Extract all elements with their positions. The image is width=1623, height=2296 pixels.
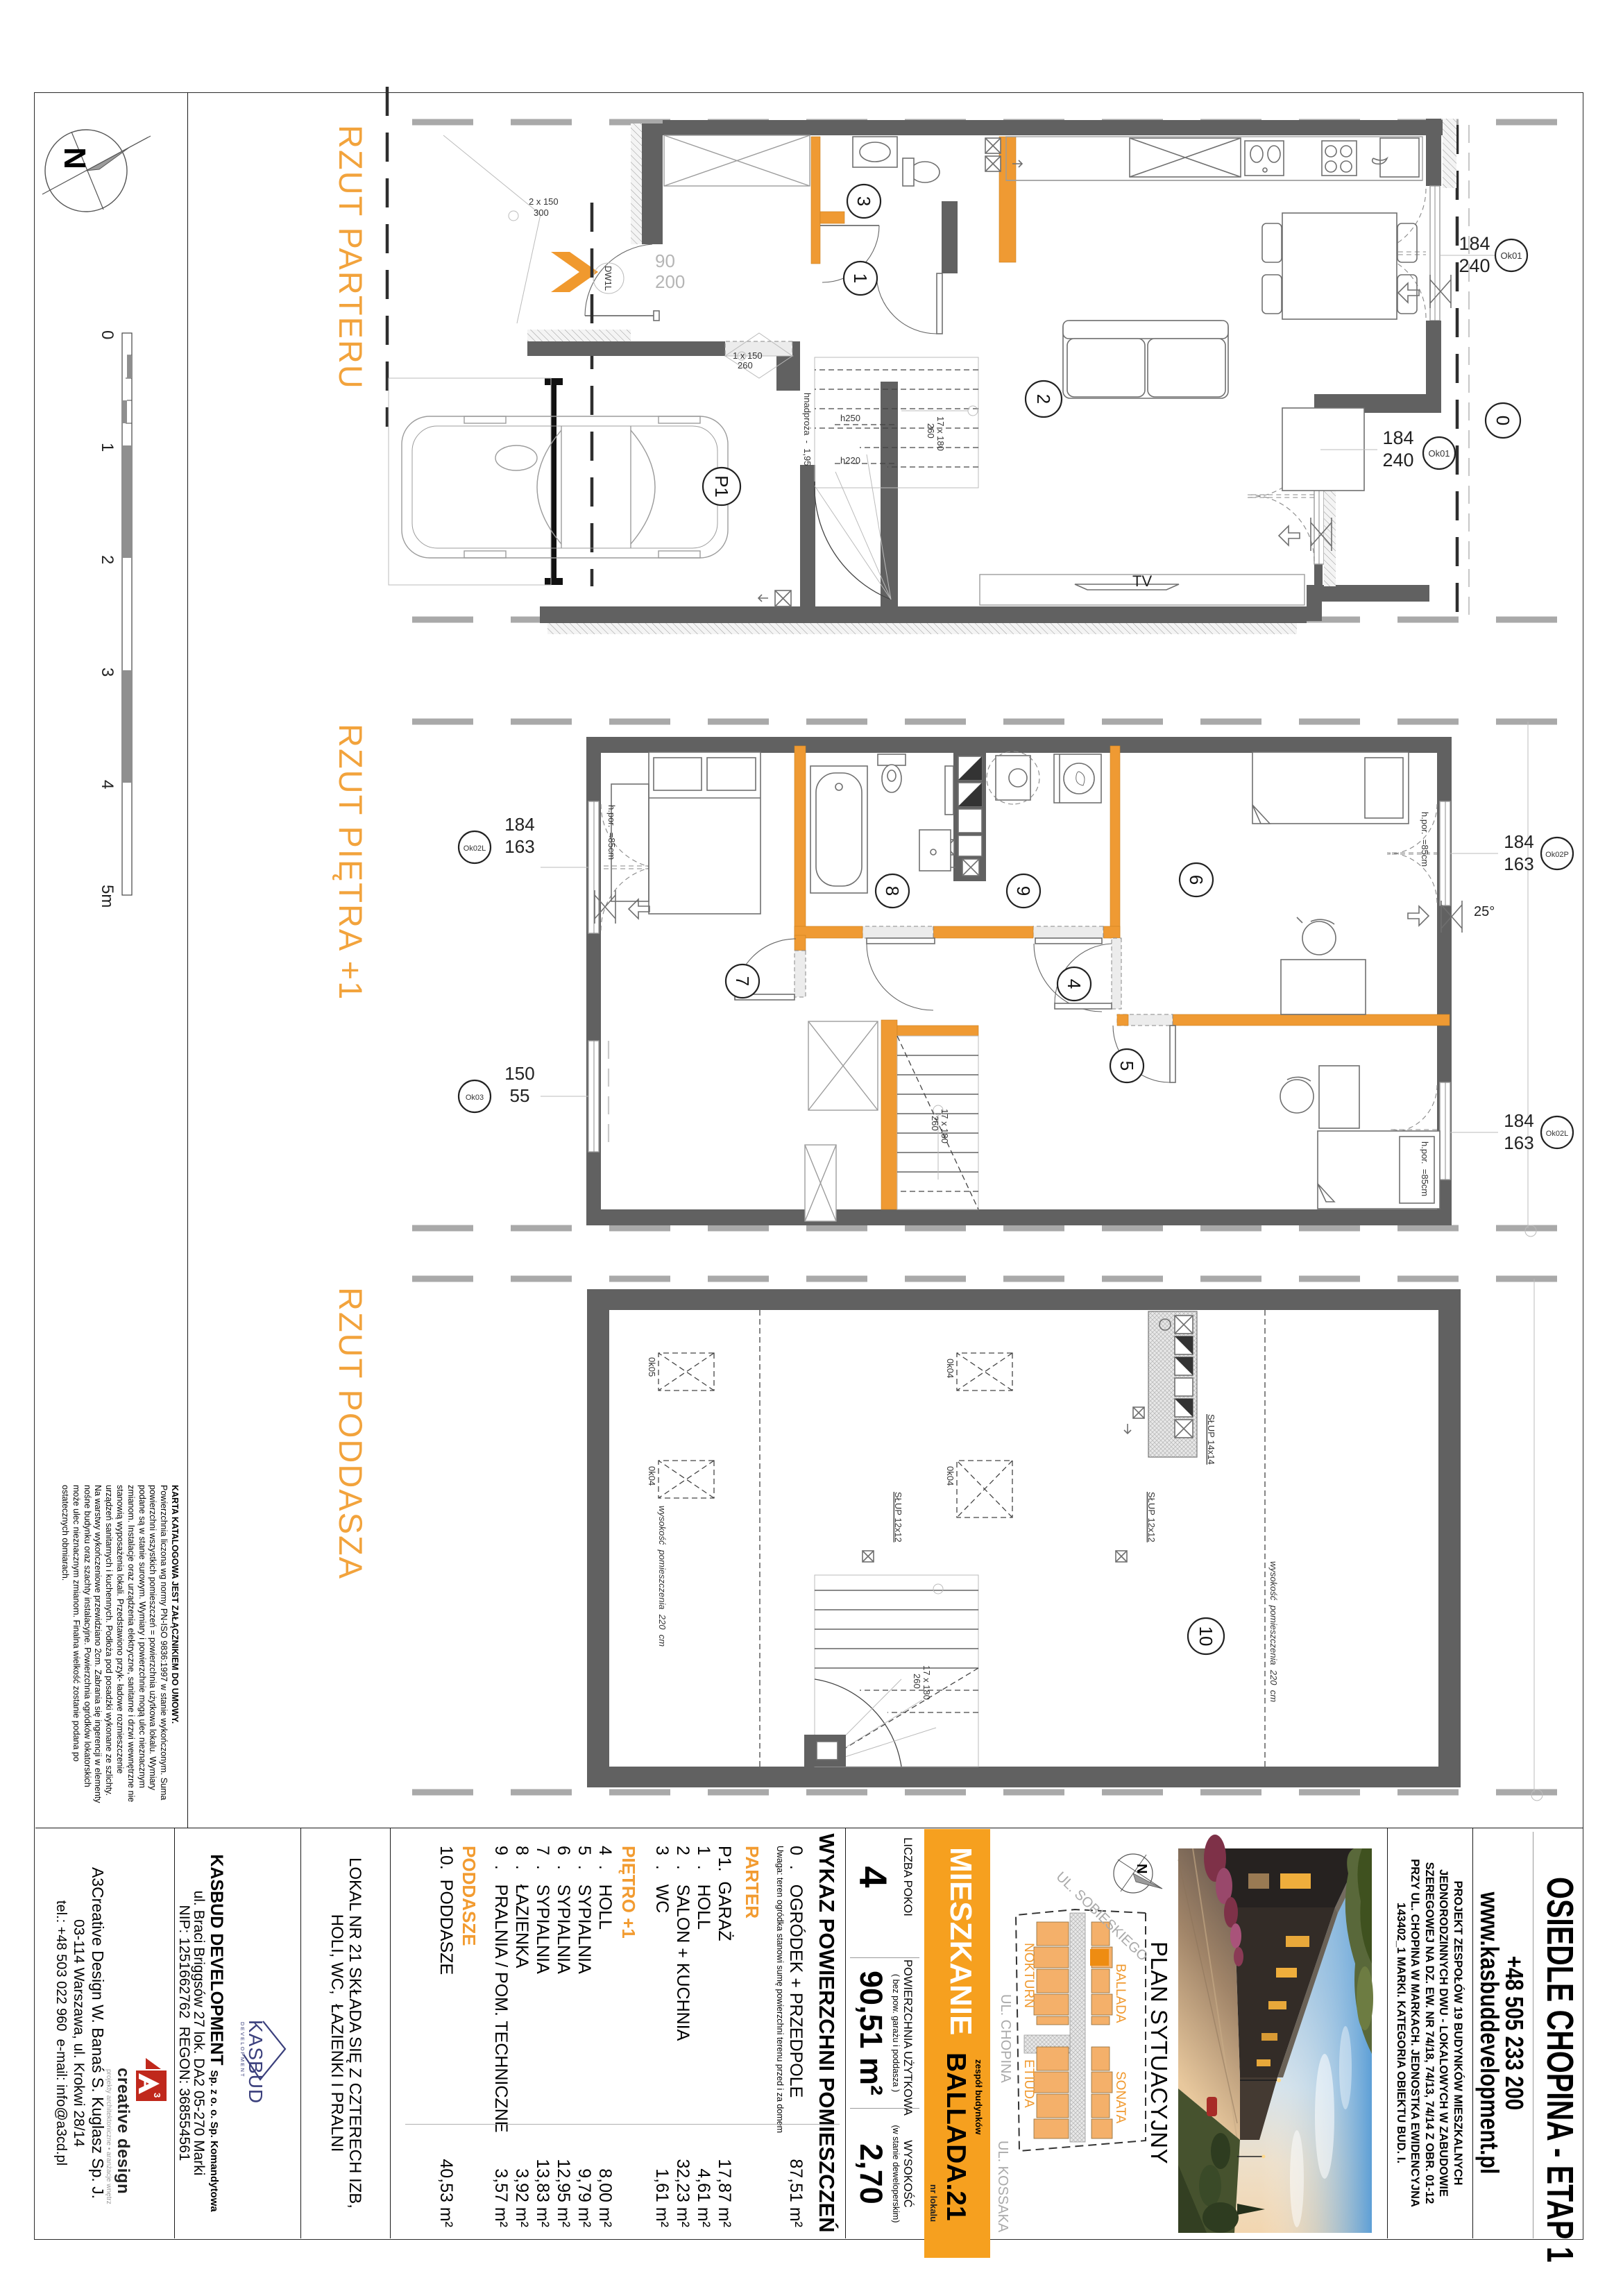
svg-text:150: 150 (504, 1063, 534, 1084)
svg-text:0k04: 0k04 (945, 1359, 955, 1378)
svg-text:NOKTURN: NOKTURN (1021, 1943, 1036, 2008)
svg-text:DW1L: DW1L (603, 266, 613, 291)
svg-text:240: 240 (1459, 255, 1490, 276)
svg-text:3: 3 (853, 196, 874, 206)
svg-text:17 x 180: 17 x 180 (940, 1109, 950, 1143)
svg-text:hnadproża - 1,95: hnadproża - 1,95 (802, 393, 813, 466)
svg-text:163: 163 (1504, 1132, 1533, 1153)
svg-text:4: 4 (1064, 979, 1085, 989)
svg-text:KASBUD: KASBUD (245, 2020, 266, 2104)
svg-text:Ok01: Ok01 (1428, 448, 1450, 459)
svg-text:BALLADA: BALLADA (1113, 1964, 1128, 2023)
svg-text:9: 9 (1013, 886, 1034, 896)
svg-text:10: 10 (1196, 1626, 1216, 1647)
svg-text:wysokość pomieszczenia 220: wysokość pomieszczenia 220 cm (657, 1506, 668, 1647)
svg-text:2 x 150: 2 x 150 (529, 196, 559, 207)
svg-text:P1: P1 (711, 475, 732, 498)
svg-text:1 x 150: 1 x 150 (733, 350, 763, 361)
svg-text:184: 184 (1504, 1110, 1533, 1131)
svg-text:3: 3 (152, 2093, 162, 2098)
svg-text:260: 260 (912, 1674, 922, 1689)
svg-text:7: 7 (732, 976, 753, 986)
svg-text:240: 240 (1382, 450, 1413, 470)
svg-text:2: 2 (98, 555, 117, 564)
svg-text:DEVELOPMENT: DEVELOPMENT (239, 2022, 246, 2078)
svg-text:5m: 5m (98, 885, 117, 908)
svg-text:Ok02L: Ok02L (1546, 1130, 1568, 1138)
svg-text:0k04: 0k04 (945, 1466, 955, 1486)
svg-text:SŁUP 12x12: SŁUP 12x12 (893, 1492, 903, 1542)
svg-text:Ok02L: Ok02L (464, 844, 486, 853)
svg-text:Ok02P: Ok02P (1545, 851, 1569, 859)
svg-text:17 x 180: 17 x 180 (935, 416, 946, 451)
svg-text:163: 163 (504, 836, 534, 857)
svg-text:3: 3 (98, 667, 117, 677)
svg-text:h.por. =85cm: h.por. =85cm (1420, 812, 1430, 867)
svg-text:wysokość pomieszczenia 220: wysokość pomieszczenia 220 cm (1268, 1561, 1279, 1702)
svg-text:184: 184 (1382, 427, 1413, 448)
svg-text:2: 2 (1033, 394, 1054, 404)
svg-text:UL. CHOPINA: UL. CHOPINA (998, 1994, 1013, 2083)
svg-text:90: 90 (655, 250, 675, 271)
svg-text:184: 184 (1459, 233, 1490, 254)
svg-text:h250: h250 (840, 413, 860, 423)
svg-text:260: 260 (926, 423, 936, 439)
svg-text:1: 1 (98, 443, 117, 452)
svg-text:UL. KOSSAKA: UL. KOSSAKA (995, 2141, 1010, 2233)
svg-text:163: 163 (1504, 853, 1533, 874)
svg-text:184: 184 (1504, 831, 1533, 852)
svg-text:0: 0 (98, 330, 117, 339)
svg-text:4: 4 (98, 780, 117, 789)
svg-text:184: 184 (504, 814, 534, 835)
svg-text:17 x 180: 17 x 180 (921, 1665, 932, 1700)
svg-text:8: 8 (882, 886, 903, 896)
svg-text:0: 0 (1493, 416, 1513, 425)
svg-text:SONATA: SONATA (1113, 2071, 1128, 2124)
svg-text:SŁUP 12x12: SŁUP 12x12 (1146, 1492, 1157, 1542)
svg-text:260: 260 (738, 360, 753, 371)
svg-text:h.por. =85cm: h.por. =85cm (606, 805, 617, 860)
svg-text:1: 1 (850, 273, 871, 283)
svg-text:200: 200 (655, 271, 685, 292)
svg-text:N: N (1134, 1864, 1149, 1873)
svg-text:h220: h220 (840, 455, 860, 466)
svg-text:Ok01: Ok01 (1500, 250, 1522, 261)
svg-text:25°: 25° (1474, 904, 1495, 919)
svg-text:Ok03: Ok03 (466, 1094, 484, 1102)
svg-text:0k04: 0k04 (647, 1466, 657, 1486)
svg-text:55: 55 (510, 1085, 530, 1106)
svg-text:300: 300 (534, 207, 549, 218)
svg-text:N: N (58, 147, 92, 169)
svg-text:h.por. =85cm: h.por. =85cm (1420, 1141, 1430, 1196)
svg-text:ETIUDA: ETIUDA (1021, 2059, 1036, 2108)
svg-text:SŁUP 14x14: SŁUP 14x14 (1206, 1414, 1216, 1465)
svg-text:260: 260 (930, 1116, 940, 1131)
svg-text:TV: TV (1132, 572, 1152, 590)
svg-text:0k05: 0k05 (647, 1357, 657, 1377)
svg-text:6: 6 (1186, 875, 1207, 885)
svg-text:creative design: creative design (114, 2068, 133, 2194)
svg-text:5: 5 (1116, 1061, 1137, 1071)
